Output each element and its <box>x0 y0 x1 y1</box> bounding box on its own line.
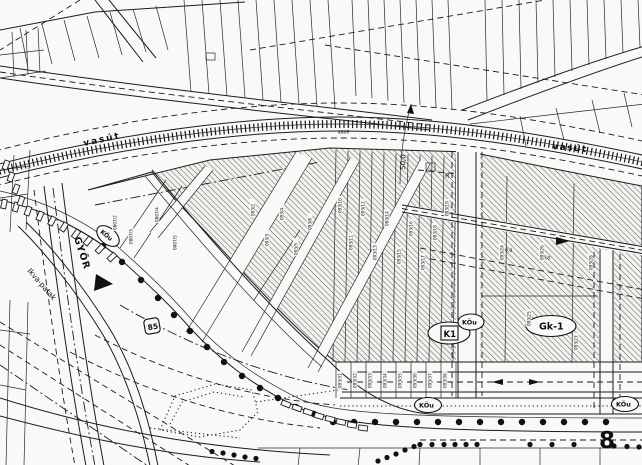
parcel-number: 093/16 <box>408 219 414 237</box>
zone-gk1-label: Gk-1 <box>539 322 564 333</box>
building-symbol <box>347 422 357 428</box>
tree-dot <box>582 419 588 425</box>
parcel-number-label: 0807/4 <box>155 207 160 222</box>
parcel-number-label: 093/31 <box>338 373 343 388</box>
parcel-number-label: 093/6 <box>308 218 313 230</box>
tree-dot-small <box>242 454 247 459</box>
parcel-number-label: 0807/5 <box>173 235 178 250</box>
zoning-plan-map: vasút vasút 4606 GYŐR Ikva-patak 50,0 6,… <box>0 0 642 465</box>
tree-dot-small <box>375 458 380 463</box>
parcel-number-label: 093/38 <box>443 373 448 388</box>
tree-dot <box>435 419 441 425</box>
tree-dot <box>456 419 462 425</box>
parcel-number-label: 0807/2 <box>113 215 118 230</box>
parcel-number: 093/27 <box>573 333 579 351</box>
tree-dot <box>540 419 546 425</box>
building-symbol <box>358 425 368 431</box>
parcel-number: 093/33 <box>367 371 373 389</box>
parcel-number: 093/14 <box>384 209 390 227</box>
parcel-number: 093/35 <box>397 371 403 389</box>
setback-dimension-label: 50,0 <box>399 154 408 170</box>
parcel-number-label: 093/18 <box>433 225 438 240</box>
parcel-number: 093/6 <box>307 213 313 231</box>
parcel-number: 093/13 <box>372 243 378 261</box>
parcel-number: 093/12 <box>360 199 366 217</box>
parcel-number: 093/32 <box>352 371 358 389</box>
zone-badge-kou-bottom-right: KÖu <box>612 397 639 412</box>
road-strip <box>599 250 614 414</box>
zone-kou-bottom-mid-label: KÖu <box>419 401 434 410</box>
parcel-number: 0807/4 <box>154 205 160 223</box>
tree-dot-small <box>441 442 446 447</box>
parcel-number: 093/15 <box>396 247 402 265</box>
parcel-number: 0807/3 <box>128 227 134 245</box>
zone-kou-center-label: KÖu <box>462 318 477 327</box>
tree-dot <box>138 277 144 283</box>
tree-dot-small <box>253 456 258 461</box>
tree-dot <box>519 419 525 425</box>
parcel-number: 093/2 <box>250 199 256 217</box>
tree-dot-small <box>624 444 629 449</box>
road-shield-85-label: 85 <box>147 322 159 333</box>
parcel-number-label: 093/5 <box>294 243 299 255</box>
parcel-number-label: 093/3 <box>265 234 270 246</box>
parcel-number-label: 093/25 <box>527 311 532 326</box>
parcel-number: 0807/2 <box>112 213 118 231</box>
parcel-number-label: 093/37 <box>428 373 433 388</box>
parcel-number-label: 093/28 <box>589 255 594 270</box>
tree-dot-small <box>463 442 468 447</box>
marker-r-label: R <box>445 172 450 180</box>
railway-parcel-number: 4606 <box>338 129 350 136</box>
parcel-number: 093/11 <box>348 233 354 251</box>
parcel-number-label: 093/35 <box>398 373 403 388</box>
parcel-number: 093/3 <box>264 229 270 247</box>
tree-dot <box>257 385 263 391</box>
parcel-number: 093/10 <box>337 196 343 214</box>
tree-dot-small <box>393 451 398 456</box>
parcel-number: 093/19 <box>444 199 450 217</box>
tree-dot-small <box>571 442 576 447</box>
parcel-number: 093/26 <box>539 243 545 261</box>
tree-dot-small <box>474 442 479 447</box>
tree-dot-small <box>231 452 236 457</box>
tree-dot <box>221 359 227 365</box>
parcel-number-label: 093/19 <box>445 201 450 216</box>
road-number-8-label: 8 <box>599 428 615 454</box>
parcel-number: 093/36 <box>412 371 418 389</box>
tree-dot <box>187 328 193 334</box>
tree-dot <box>155 295 161 301</box>
parcel-number-label: 093/10 <box>338 198 343 213</box>
tree-dot-small <box>411 444 416 449</box>
tree-dot <box>372 419 378 425</box>
tree-dot-small <box>417 442 422 447</box>
zone-k1-label: K1 <box>444 330 457 340</box>
zone-kou-bottom-right-label: KÖu <box>616 400 631 409</box>
tree-dot-small <box>452 442 457 447</box>
zone-badge-kou-center: KÖu <box>458 314 484 330</box>
parcel-number: 093/4 <box>279 203 285 221</box>
parcel-number: 093/37 <box>427 371 433 389</box>
parcel-number-label: 093/34 <box>383 373 388 388</box>
map-canvas: vasút vasút 4606 GYŐR Ikva-patak 50,0 6,… <box>0 0 642 465</box>
tree-dot-small <box>549 442 554 447</box>
parcel-number-label: 093/14 <box>385 211 390 226</box>
tree-dot-small <box>429 442 434 447</box>
tree-dot <box>204 344 210 350</box>
parcel-number-label: 093/4 <box>280 208 285 220</box>
tree-dot-small <box>527 442 532 447</box>
parcel-number-label: 093/2 <box>251 204 256 216</box>
parcel-number: 093/18 <box>432 223 438 241</box>
parcel-number-label: 093/33 <box>368 373 373 388</box>
parcel-number-label: 0807/3 <box>129 229 134 244</box>
tree-dot-small <box>636 444 641 449</box>
road-shield-85: 85 <box>143 317 160 334</box>
tree-dot <box>414 419 420 425</box>
tree-dot <box>171 312 177 318</box>
zone-badge-gk1: Gk-1 <box>526 316 576 337</box>
parcel-number: 093/25 <box>526 309 532 327</box>
parcel-number-label: 093/26 <box>540 245 545 260</box>
parcel-number: 093/28 <box>588 253 594 271</box>
parcel-number: 093/34 <box>382 371 388 389</box>
parcel-number-label: 093/36 <box>413 373 418 388</box>
parcel-number-label: 093/27 <box>574 335 579 350</box>
tree-dot-small <box>220 450 225 455</box>
tree-dot-small <box>384 455 389 460</box>
tree-dot <box>393 419 399 425</box>
parcel-number-label: 093/32 <box>353 373 358 388</box>
tree-dot-small <box>209 449 214 454</box>
tree-dot <box>498 419 504 425</box>
parcel-number: 093/38 <box>442 371 448 389</box>
parcel-number-label: 093/11 <box>349 235 354 250</box>
parcel-number: 093/17 <box>420 253 426 271</box>
parcel-number-label: 093/16 <box>409 221 414 236</box>
parcel-number-label: 093/12 <box>361 201 366 216</box>
parcel-number: 093/5 <box>293 238 299 256</box>
parcel-number-label: 093/17 <box>421 255 426 270</box>
parcel-number-label: 093/13 <box>373 245 378 260</box>
parcel-number-label: 093/15 <box>397 249 402 264</box>
tree-dot <box>561 419 567 425</box>
tree-dot <box>239 373 245 379</box>
tree-dot <box>477 419 483 425</box>
zone-badge-kou-bottom-mid: KÖu <box>415 398 442 413</box>
dim-a-label: 6,0 <box>505 247 513 254</box>
tree-dot <box>119 259 125 265</box>
parcel-number-label: 093/24 <box>500 245 505 260</box>
tree-dot-small <box>402 447 407 452</box>
parcel-number: 0807/5 <box>172 233 178 251</box>
tree-dot <box>275 395 281 401</box>
parcel-number: 093/31 <box>337 371 343 389</box>
tree-dot <box>603 419 609 425</box>
parcel-number: 093/24 <box>499 243 505 261</box>
